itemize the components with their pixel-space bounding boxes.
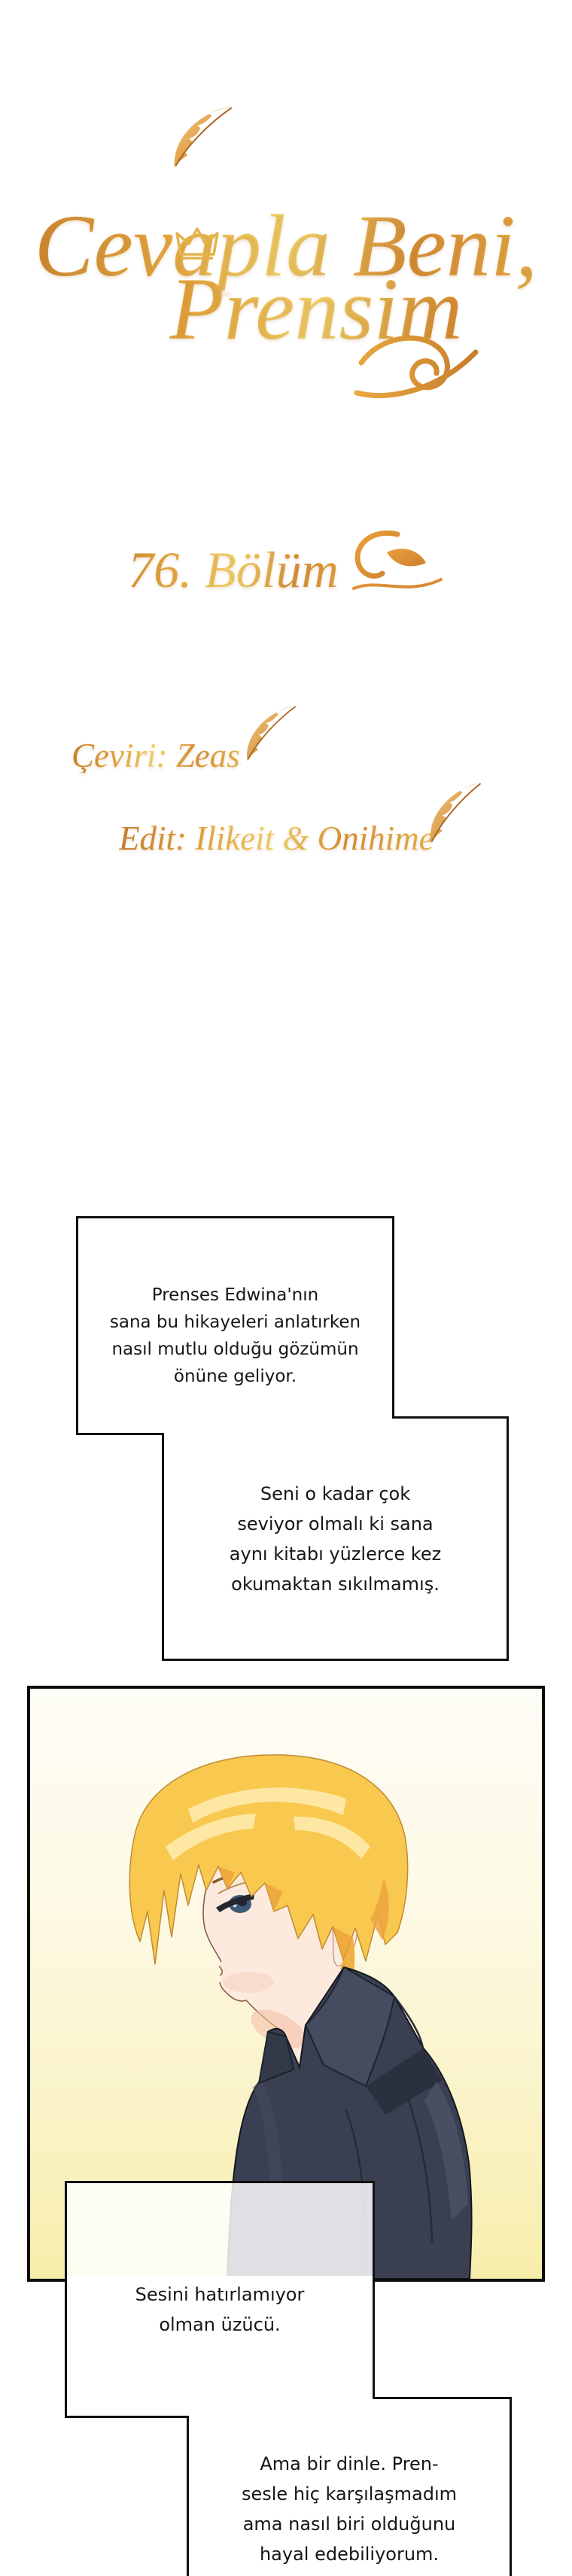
webtoon-page: Cevapla Beni, Prensim 76. Bölüm Çeviri: … xyxy=(0,0,572,2576)
credit-editor: Edit: Ilikeit & Onihime xyxy=(119,822,434,856)
speech-line: ama nasıl biri olduğunu xyxy=(189,2509,510,2539)
calligraphic-swirl-icon xyxy=(352,330,480,412)
speech-line: nasıl mutlu olduğu gözümün xyxy=(78,1336,392,1363)
speech-line: hayal edebiliyorum. xyxy=(189,2539,510,2569)
speech-bubble-1: Prenses Edwina'nın sana bu hikayeleri an… xyxy=(76,1216,394,1435)
speech-line: önüne geliyor. xyxy=(78,1363,392,1390)
speech-line: olman üzücü. xyxy=(67,2310,373,2340)
speech-bubble-3: Sesini hatırlamıyor olman üzücü. xyxy=(65,2181,375,2418)
credit-translator: Çeviri: Zeas xyxy=(71,739,240,773)
speech-line: Ama bir dinle. Pren- xyxy=(189,2449,510,2479)
speech-line: Seni o kadar çok xyxy=(164,1479,507,1509)
bubble-union-patch xyxy=(187,2397,373,2416)
feather-quill-icon xyxy=(234,701,312,767)
speech-bubble-2: Seni o kadar çok seviyor olmalı ki sana … xyxy=(162,1416,509,1661)
feather-quill-icon xyxy=(415,777,498,850)
speech-line: sesle hiç karşılaşmadım xyxy=(189,2479,510,2509)
crown-icon xyxy=(175,226,220,260)
leaf-swirl-icon xyxy=(348,527,446,602)
speech-line: sana bu hikayeleri anlatırken xyxy=(78,1309,392,1336)
speech-line: Prenses Edwina'nın xyxy=(78,1282,392,1309)
speech-line: seviyor olmalı ki sana xyxy=(164,1509,507,1539)
chapter-title: 76. Bölüm xyxy=(90,540,376,600)
bubble-union-patch xyxy=(162,1416,392,1433)
speech-bubble-4: Ama bir dinle. Pren- sesle hiç karşılaşm… xyxy=(187,2397,512,2576)
speech-line: Sesini hatırlamıyor xyxy=(67,2279,373,2310)
speech-line: aynı kitabı yüzlerce kez xyxy=(164,1539,507,1569)
series-title-line2: Prensim xyxy=(30,265,572,354)
feather-quill-icon xyxy=(162,103,248,175)
speech-line: okumaktan sıkılmamış. xyxy=(164,1569,507,1599)
